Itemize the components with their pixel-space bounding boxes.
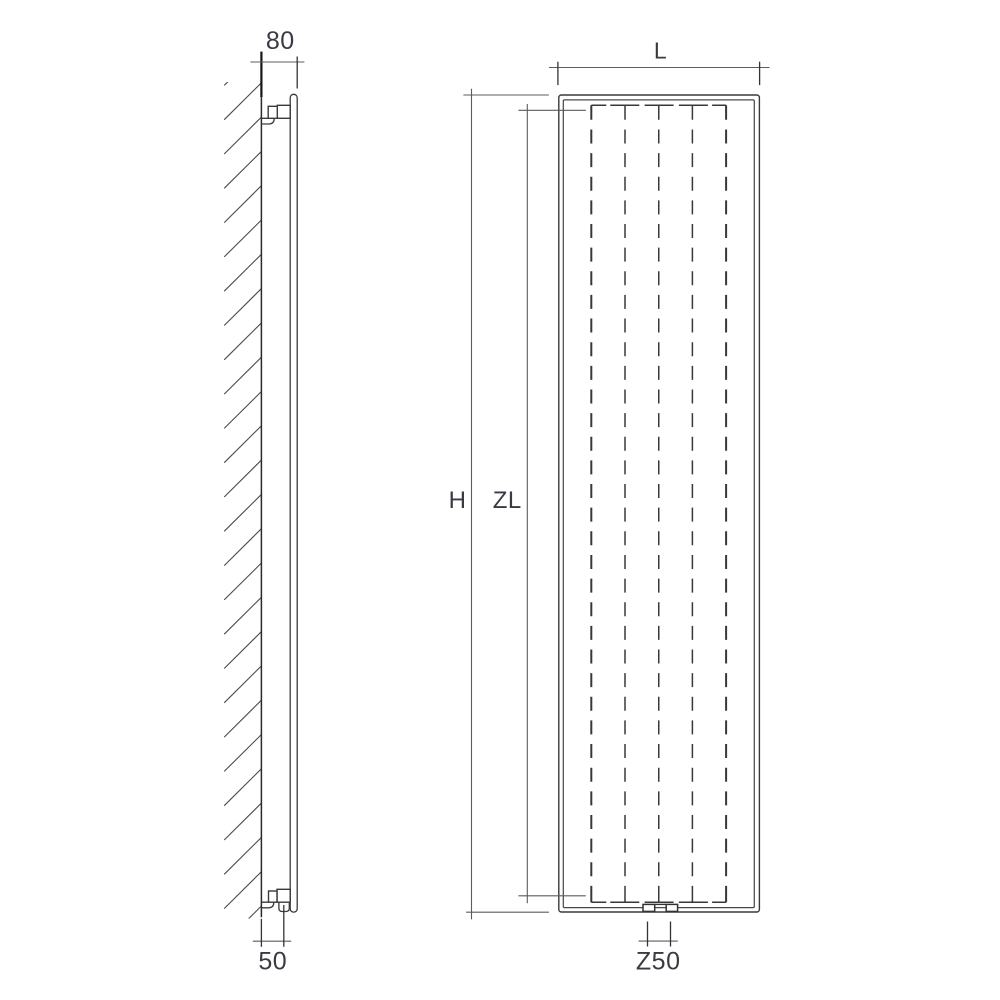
svg-text:80: 80 (266, 27, 295, 55)
svg-text:ZL: ZL (493, 487, 522, 514)
svg-text:H: H (449, 487, 467, 514)
svg-text:L: L (654, 38, 667, 64)
svg-text:50: 50 (258, 947, 287, 975)
svg-text:Z50: Z50 (636, 948, 681, 976)
